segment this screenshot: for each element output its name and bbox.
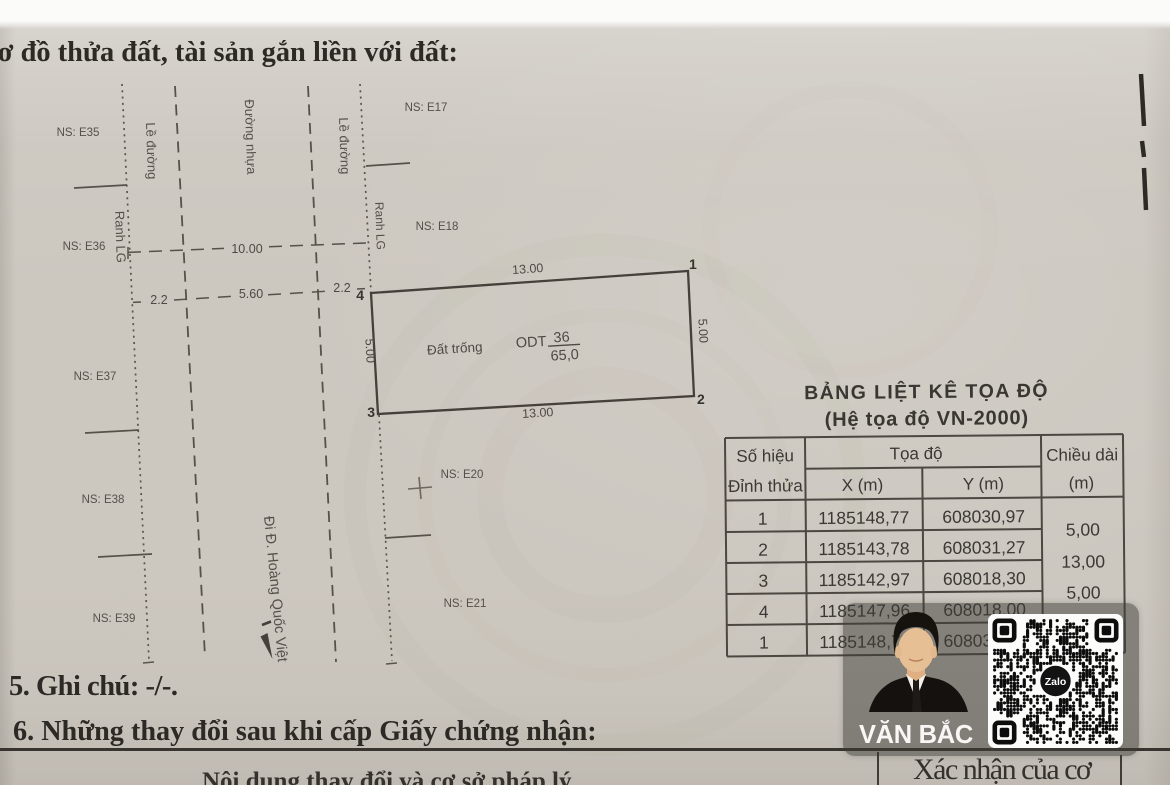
svg-text:BẢNG LIỆT KÊ TỌA ĐỘ: BẢNG LIỆT KÊ TỌA ĐỘ [804,378,1049,404]
svg-text:(Hệ tọa độ VN-2000): (Hệ tọa độ VN-2000) [825,407,1029,431]
svg-text:10.00: 10.00 [231,242,262,256]
svg-text:2: 2 [697,391,705,407]
svg-text:13,00: 13,00 [1061,551,1105,571]
svg-text:NS: E20: NS: E20 [441,469,484,481]
svg-text:1185148,77: 1185148,77 [818,507,909,528]
svg-text:NS: E37: NS: E37 [74,371,117,383]
svg-text:NS: E35: NS: E35 [57,127,100,139]
svg-text:3: 3 [758,571,768,591]
svg-text:Số hiệu: Số hiệu [736,446,794,466]
svg-text:65,0: 65,0 [550,347,579,365]
svg-text:Đỉnh thửa: Đỉnh thửa [728,476,803,496]
svg-text:1185143,78: 1185143,78 [818,538,909,559]
svg-text:1: 1 [759,633,769,653]
svg-text:Y (m): Y (m) [963,474,1004,493]
svg-text:Đường nhựa: Đường nhựa [242,99,260,175]
svg-text:NS: E39: NS: E39 [93,613,136,625]
svg-text:NS: E21: NS: E21 [444,598,487,610]
svg-text:5,00: 5,00 [1066,582,1101,602]
svg-text:2.2: 2.2 [333,281,350,295]
svg-text:VĂN BẮC: VĂN BẮC [859,719,973,749]
svg-text:13.00: 13.00 [522,405,554,421]
svg-text:Lề đường: Lề đường [336,117,353,174]
svg-text:Tọa độ: Tọa độ [890,444,943,464]
svg-text:36: 36 [553,329,570,346]
svg-text:2: 2 [758,540,768,560]
svg-text:5.60: 5.60 [239,287,263,301]
svg-text:1: 1 [689,256,697,272]
svg-text:5.00: 5.00 [695,318,710,343]
svg-text:5,00: 5,00 [1066,519,1101,539]
svg-text:3: 3 [367,404,375,420]
svg-text:NS: E36: NS: E36 [63,241,106,253]
svg-text:Zalo: Zalo [1045,676,1067,688]
svg-text:X (m): X (m) [842,475,884,494]
svg-text:1: 1 [758,509,768,529]
svg-text:608031,27: 608031,27 [943,537,1026,558]
svg-text:(m): (m) [1069,473,1095,492]
svg-text:Chiều dài: Chiều dài [1046,445,1118,465]
svg-text:608030,97: 608030,97 [942,506,1025,527]
svg-text:Đất trống: Đất trống [427,339,483,357]
svg-text:Lề đường: Lề đường [143,122,160,179]
svg-text:NS: E18: NS: E18 [416,221,459,233]
svg-text:4: 4 [759,602,769,622]
svg-text:13.00: 13.00 [512,261,544,277]
svg-text:1185142,97: 1185142,97 [819,569,910,590]
svg-text:NS: E38: NS: E38 [82,494,125,506]
svg-text:NS: E17: NS: E17 [405,102,448,114]
svg-text:Ranh LG: Ranh LG [372,202,388,250]
svg-text:ODT: ODT [515,334,547,352]
svg-text:5.00: 5.00 [362,338,377,363]
svg-text:4: 4 [356,287,364,303]
svg-text:2.2: 2.2 [150,293,167,307]
svg-text:608018,30: 608018,30 [943,568,1026,589]
svg-text:Ranh LG: Ranh LG [112,211,129,264]
